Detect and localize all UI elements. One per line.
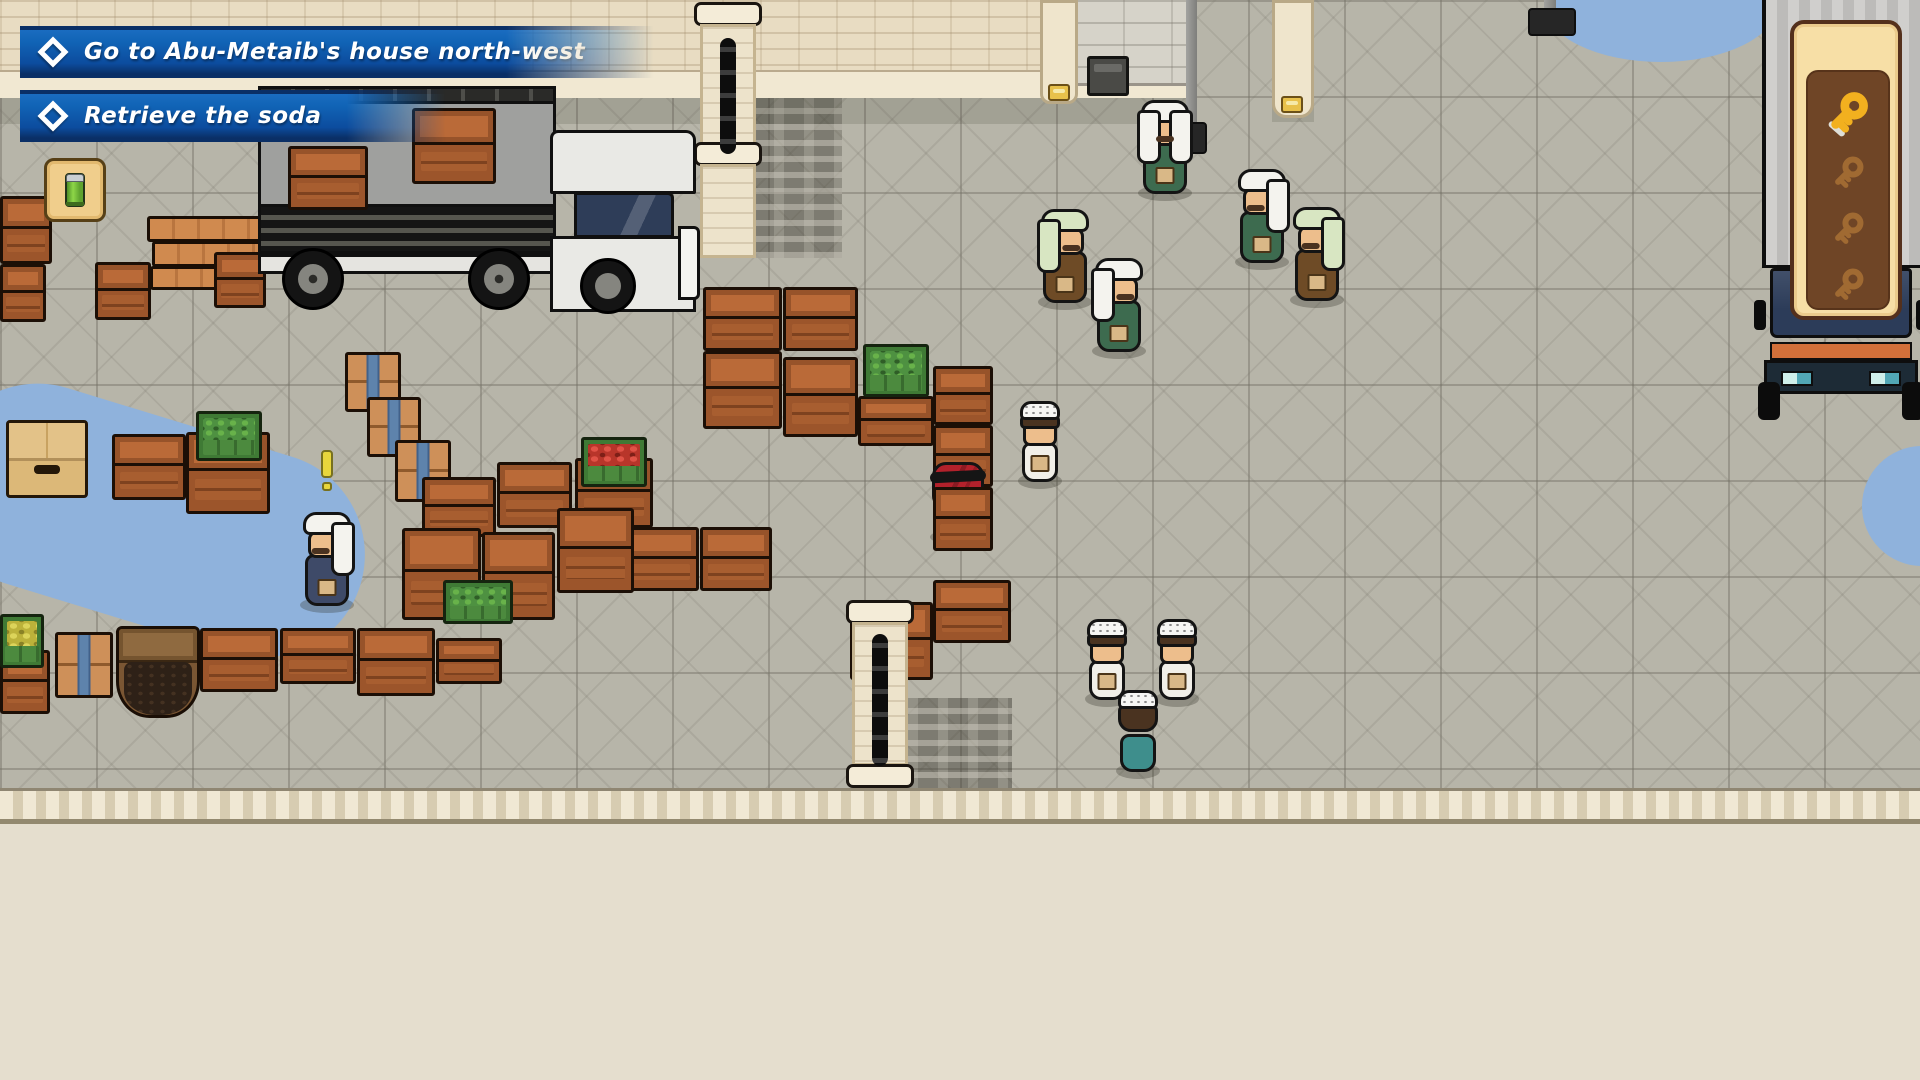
objective-banner: Go to Abu-Metaib's house north-west [20,26,660,78]
gate-post-icon [720,38,736,154]
npc-elder-green-right[interactable] [1233,163,1291,265]
greens-veg [863,344,929,397]
keffiyeh-headdress [1041,209,1089,232]
wooden-crate [557,508,634,593]
quest-exclamation-marker [321,450,333,491]
gate-pillar-north [698,0,758,260]
robe [1022,442,1058,482]
taqiyah-cap [1157,619,1197,638]
objective-diamond-icon [37,100,68,131]
truck-windshield [574,192,674,238]
pillar-cap [694,2,762,26]
wooden-crate [0,264,46,322]
key-missing-icon [1820,200,1876,256]
wooden-crate [703,287,782,351]
must [1156,136,1174,142]
npc-elder-brown-left[interactable] [1036,203,1094,305]
pillar-base-shaft [700,164,756,258]
wooden-crate [933,580,1011,643]
tomato-veg [581,437,647,487]
truck-wheel-left [1758,382,1780,420]
truck-wheel-mid [468,248,530,310]
south-blank-area [0,824,1920,1080]
truck-wheel-front [580,258,636,314]
truck-orange-stripe [1770,342,1912,360]
npc-elder-brown-right[interactable] [1288,201,1346,303]
robe [1120,734,1156,772]
truck-front-bumper [678,226,700,300]
must [1247,205,1265,211]
must [1116,294,1134,300]
gate-post-icon [872,634,888,766]
robe [1159,660,1195,700]
soda-can-icon [65,173,85,207]
greens-veg [196,411,262,461]
wall-latch-east [1281,96,1303,113]
must [1062,245,1080,251]
must [1302,243,1320,249]
keffiyeh-headdress [303,512,351,535]
gate-pillar-south [850,598,910,794]
keffiyeh-headdress [1238,169,1286,192]
taqiyah-cap [1118,690,1158,709]
keffiyeh-headdress [1141,100,1189,123]
exclamation-dot [322,482,332,491]
wooden-crate [933,487,993,551]
key-collection-panel [1790,20,1902,320]
exclamation-bar [321,450,333,478]
objective-banner: Retrieve the soda [20,90,450,142]
greens-veg [443,580,513,624]
truck-headlight-left [1781,371,1813,386]
game-viewport[interactable]: Go to Abu-Metaib's house north-westRetri… [0,0,1920,1080]
npc-elder-green-left[interactable] [1090,252,1148,354]
must [312,548,330,554]
npc-boy-teal-back[interactable] [1114,688,1162,774]
gate-shadow-south [908,698,1012,792]
strapcrate [55,632,113,698]
lemon-veg [0,614,44,668]
npc-boy-near-player[interactable] [1016,398,1064,484]
keffiyeh-headdress [1095,258,1143,281]
wooden-crate [783,357,858,437]
truck-headlight-right [1869,371,1901,386]
key-found-icon [1820,80,1876,144]
wooden-crate [95,262,151,320]
truck-bed-slats [258,204,556,254]
wooden-crate [357,628,435,696]
wooden-crate [703,351,782,429]
wooden-crate [280,628,356,684]
wooden-crate [933,366,993,425]
cardboard [6,420,88,498]
key-missing-icon [1820,256,1876,312]
truck-cab [550,130,700,308]
keffiyeh-headdress [1293,207,1341,230]
objective-diamond-icon [37,36,68,67]
wooden-crate [858,396,934,446]
key-missing-icon [1820,144,1876,200]
plaza-south-curb [0,788,1920,824]
truck-mirror-left [1754,300,1766,330]
wooden-crate [200,628,278,692]
truck-wheel-right [1902,382,1920,420]
key-slot-list [1806,70,1890,310]
pillar-base-cap [846,764,914,788]
wall-mounted-box [1087,56,1129,96]
taqiyah-cap [1087,619,1127,638]
truck-wheel-rear [282,248,344,310]
wooden-crate [783,287,858,351]
npc-elder-white-green[interactable] [1136,94,1194,196]
truck-mirror-right [1916,300,1920,330]
pillar-cap [846,600,914,624]
objective-label: Go to Abu-Metaib's house north-west [84,39,585,65]
wooden-crate [288,146,368,210]
wooden-crate [436,638,502,684]
barrel [116,626,200,718]
npc-elder-navy-quest[interactable] [298,506,356,608]
objective-label: Retrieve the soda [84,103,322,129]
wooden-crate [700,527,772,591]
taqiyah-cap [1020,401,1060,420]
wooden-crate [112,434,186,500]
wall-latch-mid [1048,84,1070,101]
soda-item-slot [44,158,106,222]
truck-bumper [1764,360,1918,394]
quest-objectives: Go to Abu-Metaib's house north-westRetri… [20,26,660,142]
street-pole-far-base [1528,8,1576,36]
